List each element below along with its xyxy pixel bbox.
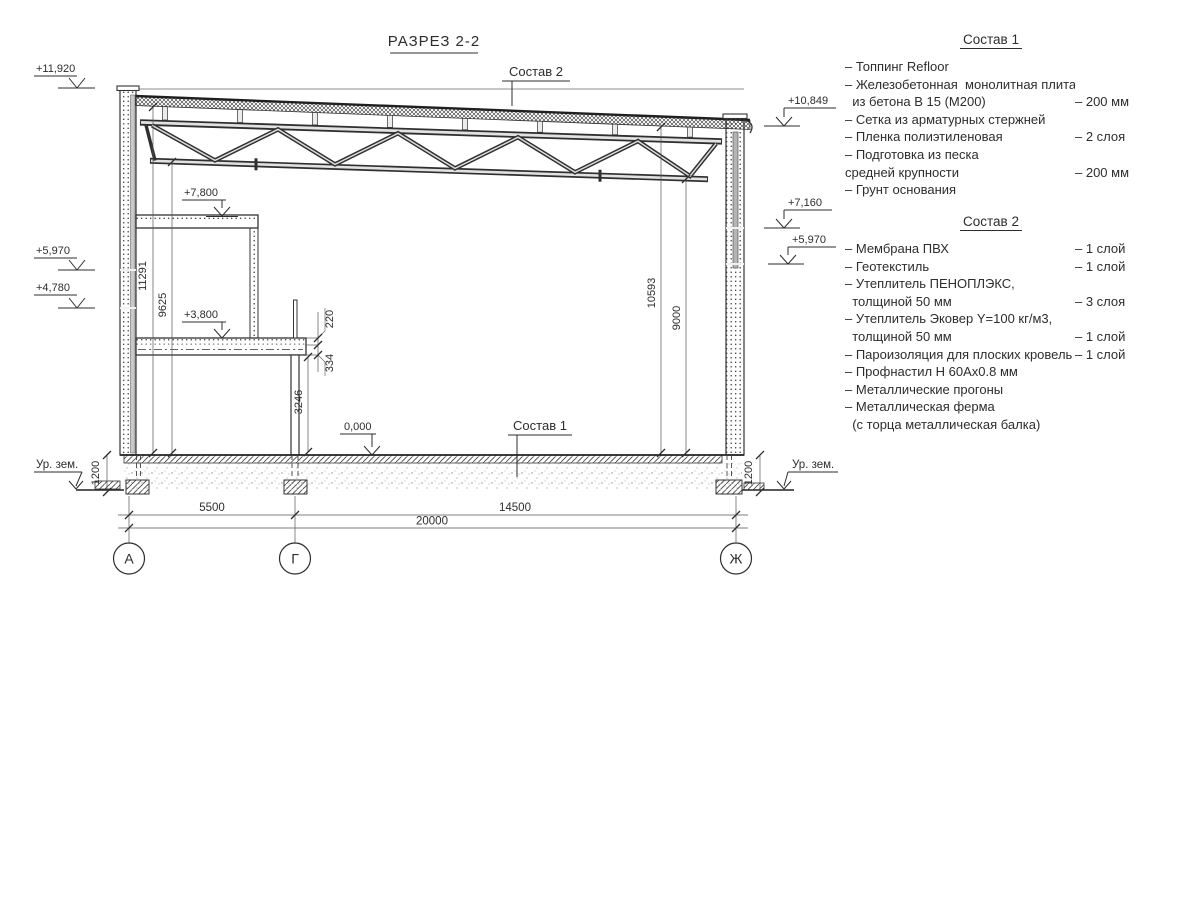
left-wall	[117, 86, 139, 455]
callouts: Состав 2 Состав 1	[502, 64, 572, 477]
note-row: из бетона В 15 (М200)– 200 мм	[845, 93, 1137, 111]
footing-g	[284, 480, 307, 494]
svg-text:1200: 1200	[743, 461, 755, 485]
notes-sostav2: Состав 2 – Мембрана ПВХ– 1 слой – Геотек…	[845, 214, 1137, 434]
svg-text:220: 220	[324, 310, 336, 328]
ground-label-left: Ур. зем.	[36, 459, 78, 471]
note-row: – Пленка полиэтиленовая– 2 слоя	[845, 128, 1137, 146]
note-row: – Сетка из арматурных стержней	[845, 111, 1137, 129]
svg-text:+3,800: +3,800	[184, 309, 218, 321]
note-row: – Геотекстиль– 1 слой	[845, 258, 1137, 276]
note-row: – Подготовка из песка	[845, 146, 1137, 164]
axis-label-a: А	[124, 551, 134, 567]
svg-text:334: 334	[324, 354, 336, 372]
svg-text:10593: 10593	[646, 278, 658, 309]
note-row: – Металлическая ферма	[845, 398, 1137, 416]
ground-label-right: Ур. зем.	[792, 459, 834, 471]
dim-5500: 5500	[199, 502, 225, 514]
svg-text:0,000: 0,000	[344, 421, 372, 433]
svg-text:+5,970: +5,970	[36, 245, 70, 257]
railing-post	[294, 300, 298, 338]
note-row: – Грунт основания	[845, 181, 1137, 199]
svg-text:9000: 9000	[671, 306, 683, 330]
svg-text:+10,849: +10,849	[788, 95, 828, 107]
elev-3800: +3,800	[182, 309, 238, 338]
note-row: – Металлические прогоны	[845, 381, 1137, 399]
note-row: толщиной 50 мм– 1 слой	[845, 328, 1137, 346]
elev-4780: +4,780	[34, 282, 95, 308]
footing-zh	[716, 480, 742, 494]
note-row: толщиной 50 мм– 3 слоя	[845, 293, 1137, 311]
blueprint-page: { "title": "РАЗРЕЗ 2-2", "drawing": { "c…	[0, 0, 1200, 900]
elev-7160: +7,160	[764, 197, 832, 228]
notes1-heading: Состав 1	[845, 32, 1137, 47]
footing-a	[126, 480, 149, 494]
svg-text:+7,800: +7,800	[184, 187, 218, 199]
svg-text:3246: 3246	[293, 390, 305, 414]
note-row: средней крупности– 200 мм	[845, 164, 1137, 182]
svg-text:+5,970: +5,970	[792, 234, 826, 246]
svg-text:+7,160: +7,160	[788, 197, 822, 209]
svg-text:1200: 1200	[90, 461, 102, 485]
bottom-dimensions: 5500 14500 20000 А Г Ж	[114, 496, 752, 574]
axis-label-g: Г	[291, 551, 299, 567]
elev-11920: +11,920	[34, 63, 95, 88]
note-row: – Пароизоляция для плоских кровель– 1 сл…	[845, 346, 1137, 364]
elev-10849: +10,849	[764, 95, 836, 126]
elev-0000: 0,000	[340, 421, 380, 455]
notes-sostav1: Состав 1 – Топпинг Refloor – Железобетон…	[845, 32, 1137, 199]
elev-5970-left: +5,970	[34, 245, 95, 270]
right-wall	[723, 114, 747, 455]
svg-text:+11,920: +11,920	[36, 63, 75, 75]
drawing-title: РАЗРЕЗ 2-2	[388, 33, 481, 50]
svg-text:9625: 9625	[157, 293, 169, 317]
dim-20000: 20000	[416, 516, 448, 528]
note-row: – Железобетонная монолитная плита	[845, 76, 1137, 94]
section-drawing: РАЗРЕЗ 2-2	[0, 0, 850, 610]
note-row: – Утеплитель Эковер Y=100 кг/м3,	[845, 310, 1137, 328]
note-row: (с торца металлическая балка)	[845, 416, 1137, 434]
callout-sostav1: Состав 1	[513, 418, 567, 433]
mezzanine	[136, 215, 306, 455]
note-row: – Утеплитель ПЕНОПЛЭКС,	[845, 275, 1137, 293]
grid-axes	[114, 543, 752, 574]
axis-label-zh: Ж	[730, 551, 743, 567]
elev-7800: +7,800	[182, 187, 238, 217]
floor-and-foundation	[76, 455, 794, 494]
note-row: – Мембрана ПВХ– 1 слой	[845, 240, 1137, 258]
svg-text:11291: 11291	[137, 261, 149, 291]
elev-5970-right: +5,970	[768, 234, 836, 264]
note-row: – Профнастил Н 60Ах0.8 мм	[845, 363, 1137, 381]
notes2-heading: Состав 2	[845, 214, 1137, 229]
note-row: – Топпинг Refloor	[845, 58, 1137, 76]
vertical-dim-labels: 11291 9625 10593 9000 3246 220 334 1200 …	[90, 261, 755, 485]
svg-text:+4,780: +4,780	[36, 282, 70, 294]
dim-14500: 14500	[499, 502, 531, 514]
callout-sostav2: Состав 2	[509, 64, 563, 79]
